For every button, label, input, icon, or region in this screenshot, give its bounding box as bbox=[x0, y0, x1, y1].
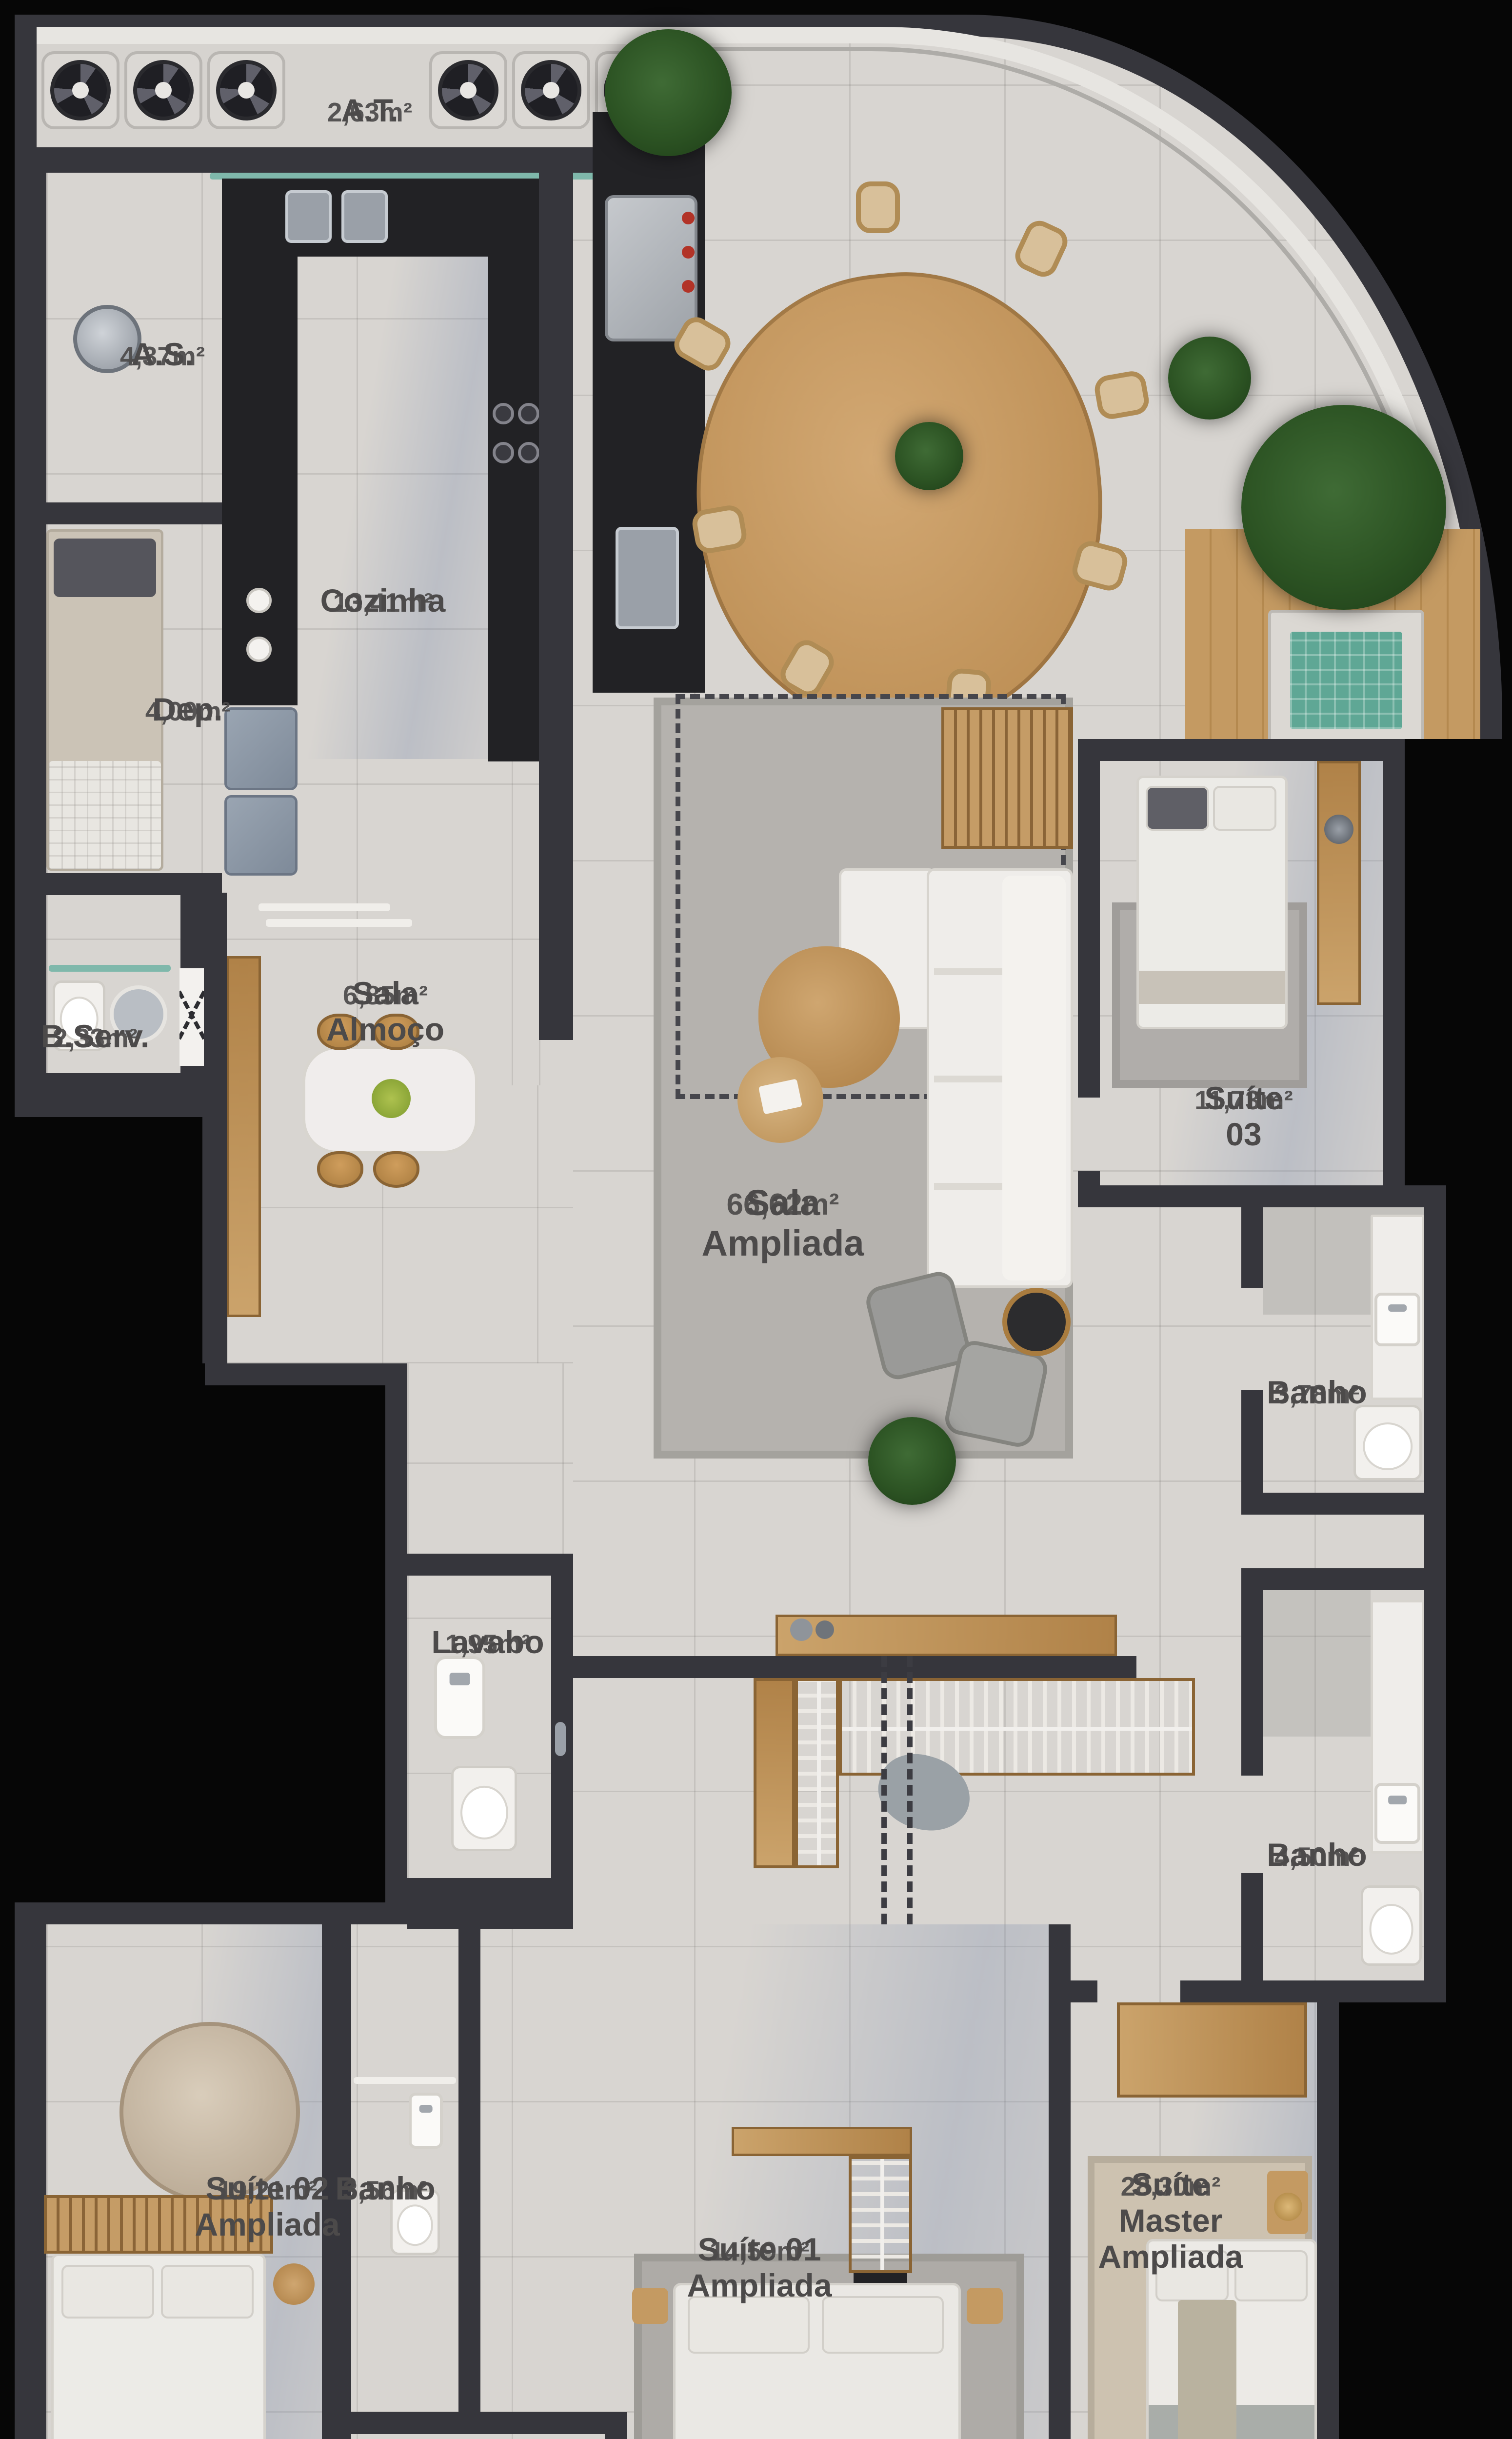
sideboard bbox=[227, 956, 261, 1317]
wood-slat-panel bbox=[941, 707, 1073, 849]
pillow-decor bbox=[688, 2296, 810, 2354]
lavabo-sink bbox=[434, 1656, 485, 1739]
wall-segment bbox=[1241, 1568, 1446, 1590]
cooktop-burner bbox=[493, 442, 514, 463]
fan-icon bbox=[216, 60, 277, 120]
wall-segment bbox=[539, 147, 573, 1040]
cooktop-burner bbox=[518, 442, 539, 463]
wall-segment bbox=[1078, 1171, 1100, 1207]
decor bbox=[758, 1079, 802, 1114]
ac-fan-unit bbox=[512, 51, 590, 129]
wall-segment bbox=[1071, 1980, 1097, 2002]
wall-segment bbox=[1317, 2002, 1339, 2439]
stool bbox=[373, 1151, 419, 1188]
wall-segment bbox=[37, 873, 222, 895]
island-sink bbox=[616, 527, 679, 629]
wall-segment bbox=[1100, 1185, 1446, 1207]
larea-decor: 66,62m² bbox=[727, 1188, 839, 1221]
pillow-decor bbox=[61, 2265, 154, 2319]
wall-segment bbox=[202, 893, 227, 1363]
laundry-knob bbox=[246, 637, 272, 662]
decor bbox=[934, 1076, 1002, 1082]
nightstand bbox=[273, 2263, 315, 2305]
larea-decor: 3,56m² bbox=[343, 2176, 428, 2206]
laundry-knob bbox=[246, 588, 272, 613]
larea-decor: 11,73m² bbox=[1194, 1085, 1293, 1116]
jacuzzi-pool bbox=[1290, 632, 1402, 729]
fan-icon bbox=[521, 60, 581, 120]
larea-decor: 6,85m² bbox=[343, 980, 428, 1011]
wall-segment bbox=[1100, 739, 1405, 761]
building-edge bbox=[1446, 1185, 1502, 2002]
decor bbox=[934, 968, 1002, 975]
gold-lamp bbox=[1274, 2193, 1302, 2221]
fan-icon bbox=[133, 60, 194, 120]
fruit-bowl bbox=[372, 1079, 411, 1118]
wall-segment bbox=[573, 1656, 1136, 1678]
cooktop-burner bbox=[493, 403, 514, 424]
decor bbox=[1002, 876, 1066, 1280]
larea-decor: 4,50m² bbox=[1274, 1842, 1359, 1872]
plant bbox=[868, 1417, 956, 1505]
kitchen-sink bbox=[285, 190, 332, 243]
pillow-decor bbox=[1146, 786, 1209, 831]
ac-fan-unit bbox=[41, 51, 119, 129]
plant bbox=[1168, 337, 1251, 420]
dryer bbox=[224, 795, 298, 876]
closet-panel bbox=[754, 1678, 795, 1868]
dining-chair bbox=[856, 181, 900, 233]
toilet bbox=[1361, 1885, 1422, 1966]
floor-plan: A.T.2,63m² A.S.4,37m² Cozinha13,41m² Dep… bbox=[0, 0, 1512, 2439]
bath-sink bbox=[409, 2093, 443, 2149]
wall-segment bbox=[37, 1073, 227, 1095]
pillow-decor bbox=[1234, 2250, 1308, 2301]
bed bbox=[673, 2283, 961, 2439]
wall-shelf bbox=[259, 903, 390, 911]
wall-segment bbox=[407, 1554, 573, 1576]
larea-decor: 2,63m² bbox=[327, 98, 412, 128]
pillow-decor bbox=[822, 2296, 944, 2354]
plant bbox=[605, 29, 732, 156]
closet-hanger-unit bbox=[849, 2156, 912, 2273]
kitchen-sink bbox=[341, 190, 388, 243]
linen-closet bbox=[179, 968, 204, 1066]
larea-decor: 14,59m² bbox=[710, 2237, 810, 2267]
side-table bbox=[1002, 1288, 1071, 1356]
kitchen-tall-cabinets bbox=[488, 179, 542, 761]
wall-segment bbox=[1424, 1185, 1446, 2002]
wall-segment bbox=[1241, 1207, 1263, 1288]
larea-decor: 28,30m² bbox=[1121, 2172, 1221, 2202]
wall-segment bbox=[351, 2412, 627, 2434]
palm-plant bbox=[1241, 405, 1446, 610]
wall-segment bbox=[458, 1924, 480, 2434]
decor bbox=[682, 280, 695, 293]
wall-segment bbox=[407, 1878, 573, 1929]
wall-segment bbox=[1241, 1873, 1263, 1980]
nightstand bbox=[632, 2288, 668, 2324]
stool bbox=[317, 1151, 363, 1188]
closet-hanger-unit bbox=[795, 1678, 839, 1868]
vase bbox=[816, 1620, 834, 1639]
fan-icon bbox=[438, 60, 498, 120]
wall-segment bbox=[1049, 1924, 1071, 2439]
door-handle bbox=[555, 1722, 566, 1756]
bath-sink bbox=[1374, 1783, 1420, 1844]
coffee-table-small bbox=[737, 1057, 823, 1143]
wall-segment bbox=[1383, 739, 1405, 1185]
washer bbox=[224, 707, 298, 790]
cooktop-burner bbox=[518, 403, 539, 424]
ac-fan-unit bbox=[207, 51, 285, 129]
larea-decor: 1,95m² bbox=[445, 1629, 530, 1659]
bath-sink bbox=[1374, 1293, 1420, 1346]
ampliacao-dashed-line bbox=[881, 1656, 887, 1924]
building-edge bbox=[1339, 2002, 1502, 2439]
ac-fan-unit bbox=[124, 51, 202, 129]
wall-segment bbox=[1180, 1980, 1446, 2002]
larea-decor: 2,33m² bbox=[53, 1023, 138, 1054]
bed bbox=[51, 2254, 266, 2439]
decor bbox=[682, 212, 695, 224]
pillow-decor bbox=[161, 2265, 254, 2319]
wall-shelf bbox=[266, 919, 412, 927]
wardrobe-desk bbox=[1317, 761, 1361, 1005]
ac-fan-unit bbox=[429, 51, 507, 129]
wall-segment bbox=[1241, 1590, 1263, 1776]
shower-glass bbox=[49, 965, 171, 972]
building-edge bbox=[1405, 739, 1502, 1185]
wall-segment bbox=[605, 2434, 627, 2439]
closet-top-bar bbox=[732, 2127, 912, 2156]
vase bbox=[790, 1619, 813, 1641]
larea-decor: 13,41m² bbox=[333, 588, 433, 618]
larea-decor: 4,00m² bbox=[145, 697, 230, 727]
larea-decor: 19,21m² bbox=[218, 2176, 318, 2206]
decor bbox=[934, 1183, 1002, 1190]
decor bbox=[682, 246, 695, 259]
table-centerpiece-plant bbox=[895, 422, 963, 490]
bed-blanket bbox=[49, 761, 161, 869]
toilet bbox=[451, 1766, 517, 1851]
larea-decor: 3,78m² bbox=[1274, 1379, 1359, 1410]
nightstand bbox=[967, 2288, 1003, 2324]
bed bbox=[1136, 776, 1288, 1029]
decor bbox=[1139, 971, 1285, 1004]
decor bbox=[1178, 2300, 1236, 2439]
sofa bbox=[927, 868, 1073, 1288]
wall-segment bbox=[37, 502, 222, 524]
shower-area bbox=[1263, 1590, 1371, 1737]
wall-segment bbox=[1078, 739, 1100, 1098]
larea-decor: 4,37m² bbox=[120, 341, 205, 372]
pillow-decor bbox=[1213, 786, 1276, 831]
grill bbox=[605, 195, 697, 341]
wall-segment bbox=[1241, 1493, 1446, 1515]
shower-door-track bbox=[354, 2077, 456, 2084]
facade-band bbox=[37, 27, 649, 44]
fan-icon bbox=[50, 60, 111, 120]
ampliacao-dashed-line bbox=[907, 1656, 913, 1924]
tv-panel bbox=[1117, 2002, 1307, 2098]
toilet bbox=[1353, 1405, 1422, 1480]
desk-lamp bbox=[1324, 815, 1353, 844]
bed-pillow bbox=[54, 539, 156, 597]
